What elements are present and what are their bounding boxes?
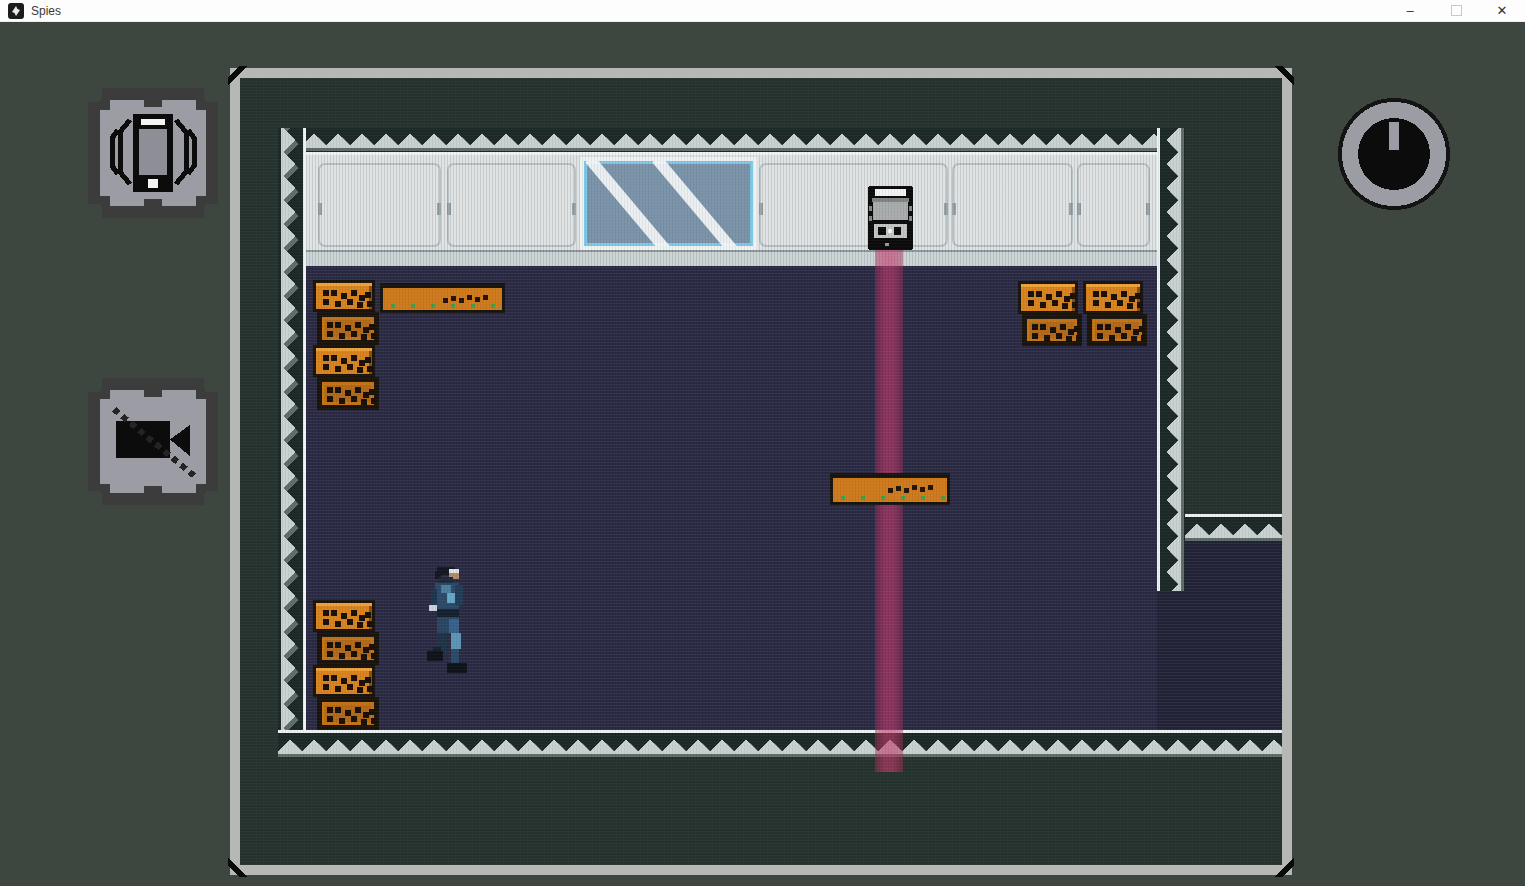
crate <box>1087 314 1147 346</box>
game-viewport[interactable] <box>230 68 1292 875</box>
crate <box>313 280 375 312</box>
crate <box>317 697 379 730</box>
crate <box>313 345 375 377</box>
robot-sprite <box>868 186 913 250</box>
minimize-button[interactable]: – <box>1387 0 1433 22</box>
crate <box>317 377 379 410</box>
spies-logo-icon <box>8 3 24 19</box>
crate <box>1022 314 1082 346</box>
crate <box>1018 281 1078 314</box>
close-button[interactable]: ✕ <box>1479 0 1525 22</box>
player-sprite <box>425 565 471 680</box>
crate <box>313 600 375 632</box>
phone-vibrate-icon <box>88 88 218 218</box>
crate <box>1083 281 1143 314</box>
glass-window <box>580 157 757 250</box>
crate <box>313 665 375 697</box>
maximize-icon <box>1451 5 1462 16</box>
timer-clock-icon <box>1336 96 1452 212</box>
laser-beam <box>875 250 903 772</box>
crate <box>317 632 379 665</box>
robot <box>868 186 913 250</box>
desktop: { "window": { "title": "Spies" }, "title… <box>0 0 1525 886</box>
player <box>425 565 471 680</box>
table <box>830 473 950 505</box>
camera-off-icon <box>88 378 218 505</box>
level-area <box>240 78 1282 865</box>
maximize-button[interactable] <box>1433 0 1479 22</box>
window-title: Spies <box>31 4 1387 18</box>
titlebar: Spies – ✕ <box>0 0 1525 22</box>
table <box>380 283 505 313</box>
crate <box>317 312 379 345</box>
entity-layer <box>240 78 1282 865</box>
